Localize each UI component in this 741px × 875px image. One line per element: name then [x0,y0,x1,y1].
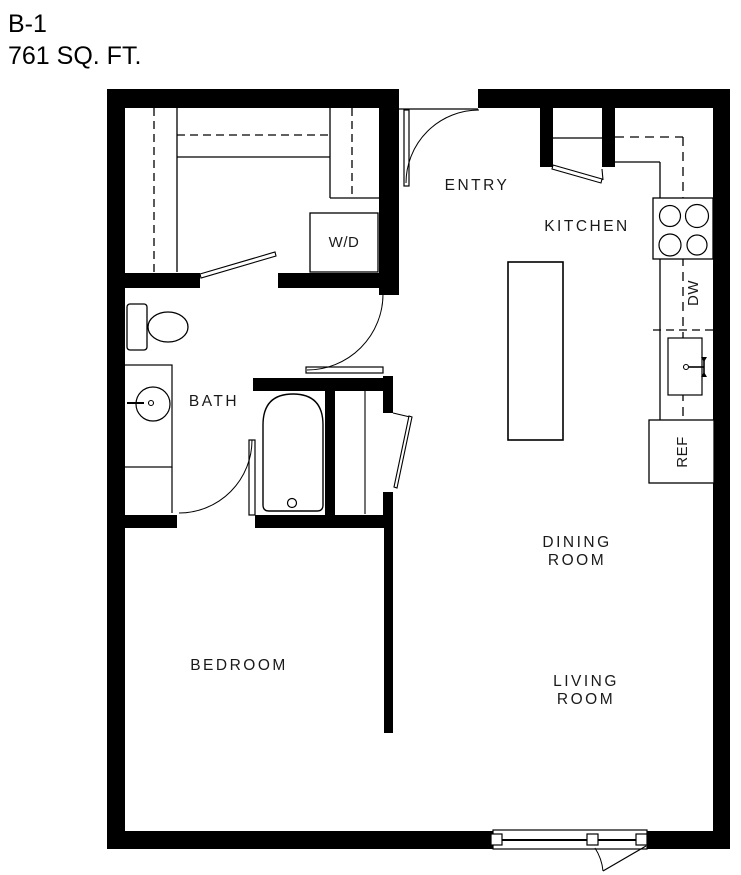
wall-closet-bottom-b [278,273,399,288]
wall-bottom-right [647,831,730,849]
wall-tub-middle [325,388,335,528]
wall-top-right [478,89,730,108]
plan-code-title: B-1 [8,10,47,39]
wall-coat-closet-left [540,108,553,167]
window-mullion-right [636,834,647,845]
toilet-bowl [148,312,188,342]
washer-dryer-label: W/D [310,234,378,252]
wall-top-left [107,89,399,108]
wall-coat-closet-right [602,108,615,167]
window-mullion-left [491,834,502,845]
wall-tub-top [253,378,393,391]
bedroom-closet-door-leaf [200,252,276,278]
patio-door-leaf [603,846,646,871]
living-room-label: LIVING ROOM [531,673,641,709]
dishwasher-label: DW [685,280,703,306]
wall-right-exterior [713,89,730,849]
wall-linen-top [383,376,393,413]
plan-area-title: 761 SQ. FT. [8,42,141,71]
patio-window [491,830,647,871]
bath-door-arc [179,440,252,513]
wall-left-exterior [107,89,125,849]
entry-label: ENTRY [427,177,527,195]
wall-closet-bottom-a [107,273,200,288]
bedroom-label: BEDROOM [169,657,309,675]
refrigerator-label: REF [674,436,692,468]
entry-door-arc [406,110,479,183]
linen-door-top-line [393,413,410,417]
wall-linen-bottom [383,492,393,528]
wall-closet-entry [379,89,399,295]
bathtub-drain [288,499,297,508]
bath-sink-drain [149,401,154,406]
patio-door-arc [595,848,603,871]
kitchen-label: KITCHEN [527,218,647,236]
linen-door-leaf [394,416,412,488]
window-mullion-middle [587,834,598,845]
coat-closet-door-edge [602,169,603,180]
coat-closet-door-leaf [552,165,602,183]
toilet-tank [127,304,147,350]
hall-door-arc [307,294,383,370]
dining-room-label: DINING ROOM [522,534,632,570]
kitchen-island [508,262,563,440]
wall-bath-bottom-b [255,515,393,528]
wall-bottom-left [107,831,493,849]
floor-plan-drawing [0,0,741,875]
walls [107,89,730,849]
hall-door-leaf [306,367,383,373]
bath-label: BATH [164,393,264,411]
wall-bedroom-right [384,528,393,733]
bath-door-leaf [249,440,255,515]
wall-bath-bottom-a [107,515,177,528]
floor-plan: B-1 761 SQ. FT. ENTRY KITCHEN BATH BEDRO… [0,0,741,875]
bathtub [263,394,323,511]
